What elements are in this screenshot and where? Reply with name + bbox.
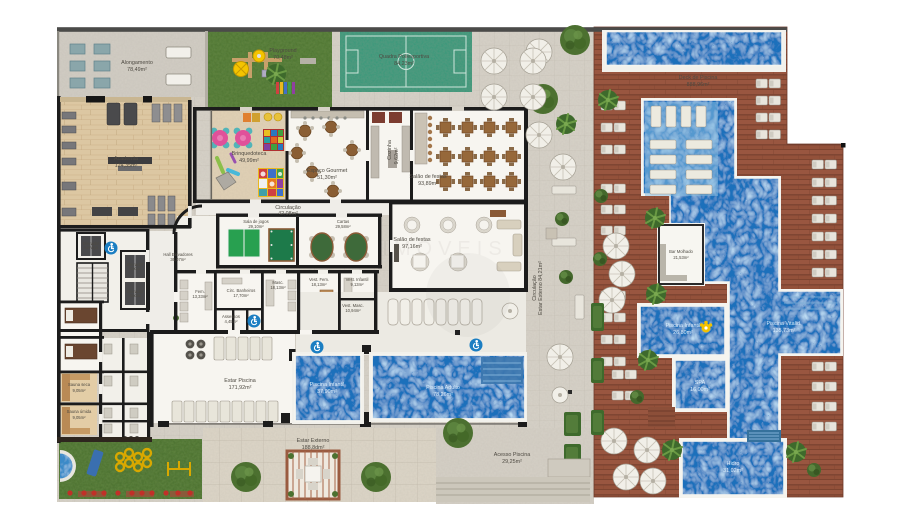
svg-text:78,49m²: 78,49m² — [127, 67, 147, 73]
svg-text:18,13m²: 18,13m² — [311, 282, 327, 287]
svg-text:Hidro: Hidro — [727, 461, 740, 467]
svg-text:26,80m²: 26,80m² — [673, 330, 693, 336]
svg-text:9,05m²: 9,05m² — [72, 415, 86, 420]
svg-text:888,96m²: 888,96m² — [687, 82, 710, 88]
svg-text:36,07m²: 36,07m² — [170, 257, 186, 262]
svg-text:51,30m²: 51,30m² — [317, 175, 337, 181]
svg-text:13,33m²: 13,33m² — [192, 294, 208, 299]
svg-text:Estar Piscina: Estar Piscina — [224, 378, 255, 384]
svg-text:Estar Externo: Estar Externo — [297, 438, 330, 444]
svg-text:Salão de festas: Salão de festas — [409, 174, 446, 180]
svg-text:4,45m²: 4,45m² — [224, 319, 238, 324]
svg-text:Alongamento: Alongamento — [121, 60, 153, 66]
svg-text:Estar Externo 84,21m²: Estar Externo 84,21m² — [538, 261, 544, 315]
svg-text:Salão de festas: Salão de festas — [393, 237, 430, 243]
svg-text:Piscina Infantil: Piscina Infantil — [310, 382, 345, 388]
svg-text:124,35m²: 124,35m² — [115, 163, 138, 169]
svg-text:37,90m²: 37,90m² — [317, 389, 337, 395]
svg-text:Quadra Poliesportiva: Quadra Poliesportiva — [379, 54, 429, 60]
svg-text:188,8dm²: 188,8dm² — [302, 445, 325, 451]
svg-text:135,73m²: 135,73m² — [773, 328, 796, 334]
svg-text:Sauna seca: Sauna seca — [68, 382, 91, 387]
svg-text:9,05m²: 9,05m² — [72, 388, 86, 393]
svg-text:70,48m²: 70,48m² — [273, 55, 293, 61]
svg-text:Piscina Infantil: Piscina Infantil — [666, 323, 701, 329]
svg-text:Acesso Piscina: Acesso Piscina — [494, 452, 531, 458]
svg-text:Cozinha: Cozinha — [387, 140, 393, 160]
svg-text:Deck de Piscina: Deck de Piscina — [679, 75, 718, 81]
svg-text:Playground: Playground — [269, 48, 296, 54]
svg-text:16,00m²: 16,00m² — [690, 387, 710, 393]
svg-text:17,70m²: 17,70m² — [233, 293, 249, 298]
svg-text:49,99m²: 49,99m² — [239, 158, 259, 164]
svg-text:93,89m²: 93,89m² — [418, 181, 438, 187]
svg-text:Sauna úmida: Sauna úmida — [67, 409, 92, 414]
svg-text:97,16m²: 97,16m² — [402, 244, 422, 250]
svg-text:21,53m²: 21,53m² — [673, 255, 689, 260]
svg-text:Social: Social — [129, 293, 140, 298]
svg-text:31,02m²: 31,02m² — [723, 468, 743, 474]
svg-text:Academia: Academia — [114, 156, 138, 162]
svg-text:29,58m²: 29,58m² — [335, 224, 351, 229]
svg-text:29,25m²: 29,25m² — [502, 459, 522, 465]
svg-text:29,10m²: 29,10m² — [248, 224, 264, 229]
svg-text:78,26m²: 78,26m² — [433, 392, 453, 398]
svg-text:10,94m²: 10,94m² — [345, 308, 361, 313]
svg-text:18,13m²: 18,13m² — [270, 285, 286, 290]
svg-text:Piscina Adulto: Piscina Adulto — [426, 385, 460, 391]
svg-text:171,92m²: 171,92m² — [229, 385, 252, 391]
svg-text:SPA: SPA — [695, 380, 706, 386]
svg-text:Serviço: Serviço — [84, 245, 99, 250]
svg-text:Brinquedoteca: Brinquedoteca — [232, 151, 267, 157]
svg-text:Espaço Gourmet: Espaço Gourmet — [307, 168, 348, 174]
svg-text:9,62m²: 9,62m² — [394, 147, 400, 164]
svg-text:Bar Molhado: Bar Molhado — [669, 249, 693, 254]
svg-text:42,08m²: 42,08m² — [278, 211, 298, 217]
svg-text:84,23m²: 84,23m² — [394, 61, 414, 67]
svg-text:9,13m²: 9,13m² — [350, 282, 364, 287]
svg-text:Piscina Vitalid.: Piscina Vitalid. — [767, 321, 802, 327]
svg-text:Social: Social — [129, 266, 140, 271]
